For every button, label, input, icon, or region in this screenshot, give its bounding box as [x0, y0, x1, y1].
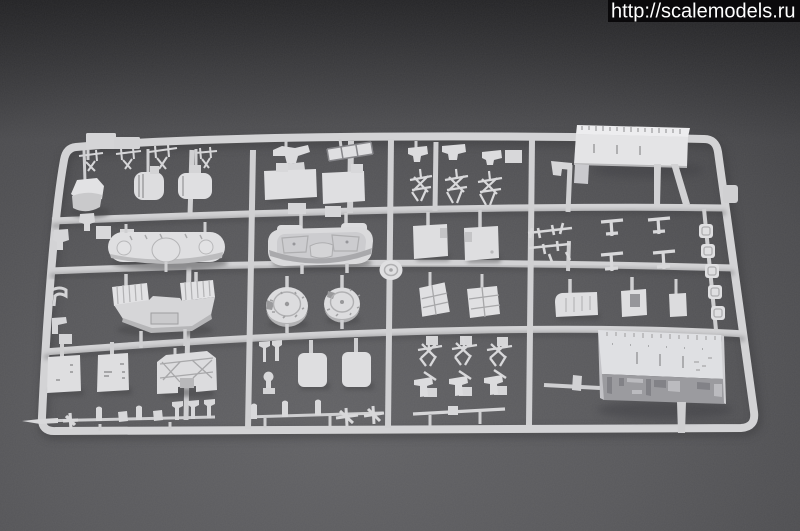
svg-text:http://scalemodels.ru: http://scalemodels.ru	[611, 1, 796, 23]
